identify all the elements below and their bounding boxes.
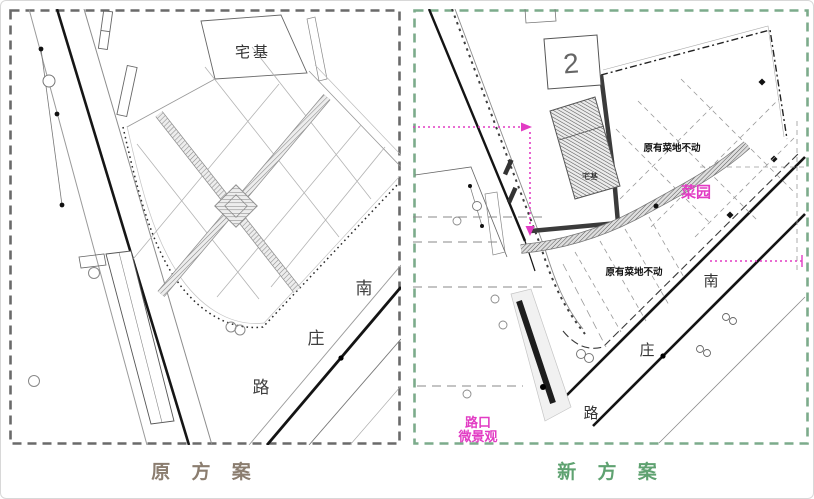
road-name-char-zhuang: 庄 bbox=[639, 341, 654, 359]
new-plan-panel: 宅基 2 bbox=[413, 9, 809, 445]
road-name-char-nan: 南 bbox=[356, 279, 373, 298]
new-plan-drawing: 宅基 2 bbox=[413, 9, 809, 445]
road-name-char-zhuang: 庄 bbox=[308, 329, 325, 348]
homestead-label: 宅基 bbox=[582, 171, 598, 181]
field-note-upper: 原有菜地不动 bbox=[643, 142, 701, 154]
road-name-char-lu: 路 bbox=[583, 405, 598, 422]
road-name-char-nan: 南 bbox=[703, 273, 718, 290]
original-plan-panel: 宅基 bbox=[9, 9, 401, 445]
intersection-note-line1: 路口 bbox=[465, 415, 491, 430]
numbered-plot: 2 bbox=[525, 9, 601, 89]
field-edges bbox=[127, 65, 401, 167]
garden-label: 菜园 bbox=[680, 183, 711, 201]
field-note-lower: 原有菜地不动 bbox=[605, 266, 663, 278]
homestead-label: 宅基 bbox=[235, 44, 271, 61]
roadside-buildings bbox=[98, 11, 137, 117]
left-road bbox=[29, 9, 212, 445]
south-road bbox=[249, 265, 401, 445]
intersection-note-line2: 微景观 bbox=[457, 429, 497, 444]
footpaths bbox=[129, 47, 385, 299]
garden-path bbox=[521, 145, 747, 249]
original-plan-caption: 原 方 案 bbox=[9, 463, 401, 482]
original-panel-border bbox=[11, 11, 400, 444]
arrow-right-icon bbox=[521, 123, 532, 132]
plan-comparison: 宅基 bbox=[0, 0, 814, 499]
homestead-building: 宅基 bbox=[550, 97, 620, 199]
new-plan-caption: 新 方 案 bbox=[413, 463, 809, 482]
building-strip bbox=[29, 251, 246, 424]
homestead-parcel: 宅基 bbox=[201, 15, 327, 81]
original-plan-drawing: 宅基 bbox=[9, 9, 401, 445]
plot-number-label: 2 bbox=[562, 47, 580, 79]
road-name-char-lu: 路 bbox=[253, 378, 270, 397]
west-side-details bbox=[413, 159, 571, 421]
